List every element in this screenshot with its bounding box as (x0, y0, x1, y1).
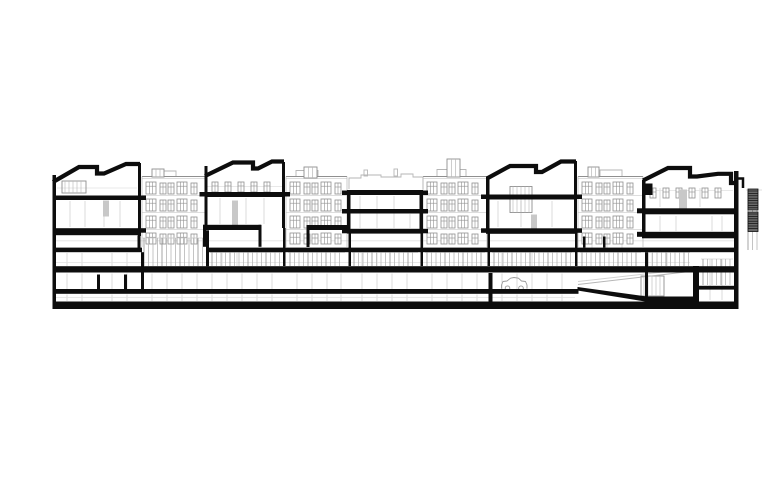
paper-background (0, 0, 780, 488)
louver-screen (748, 189, 758, 232)
architectural-section-canvas (0, 0, 780, 488)
building-section-drawing (0, 0, 780, 488)
